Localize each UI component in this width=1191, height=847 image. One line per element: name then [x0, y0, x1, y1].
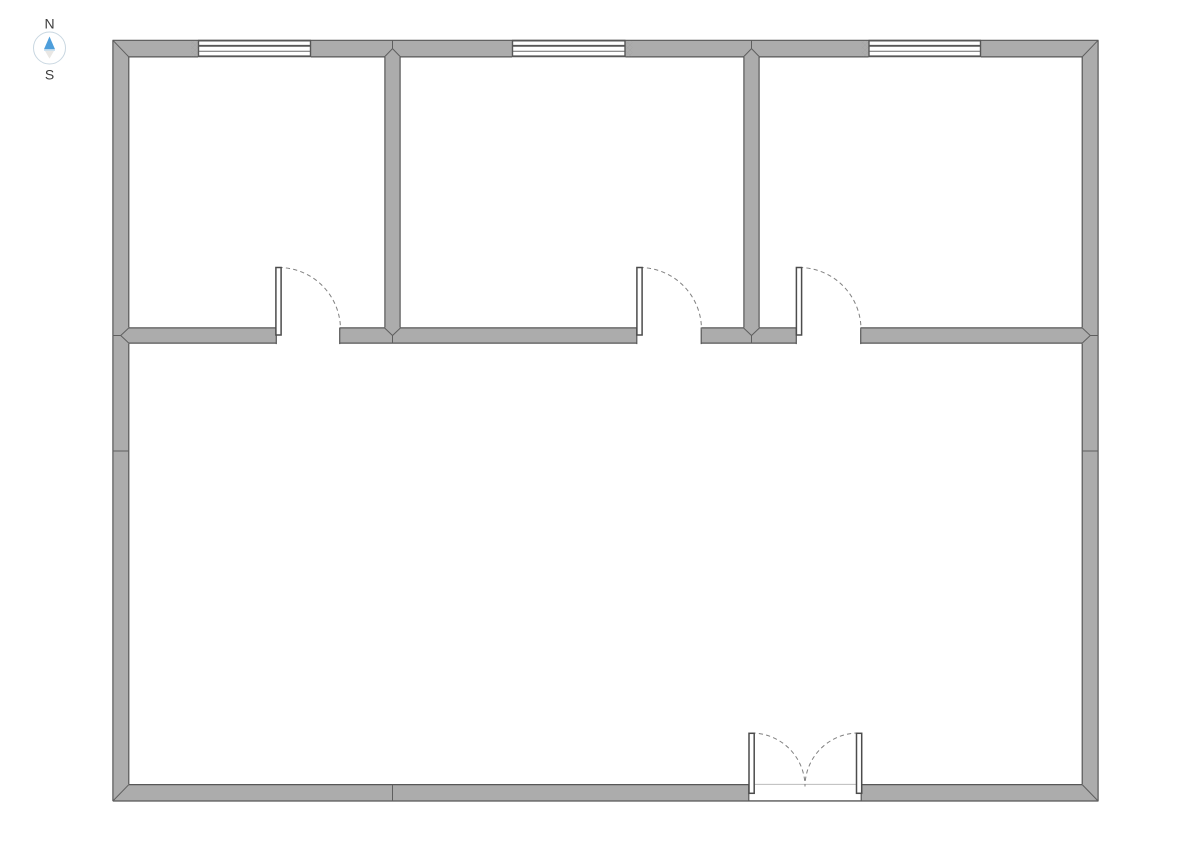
svg-text:S: S: [45, 67, 54, 83]
svg-text:N: N: [44, 16, 54, 32]
